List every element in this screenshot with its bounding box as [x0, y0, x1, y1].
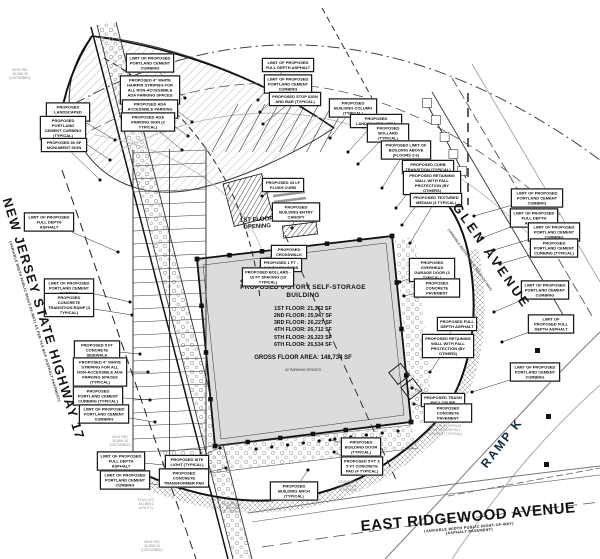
site-plan-canvas: NEW JERSEY STATE HIGHWAY 17 (VARIABLE WI… — [0, 0, 600, 559]
callout-label: PROPOSED RETAINING WALL WITH FALL PROTEC… — [403, 171, 461, 195]
survey-note: MONUMENT 28.59/9.24 (EXISTING) — [338, 480, 357, 492]
callout-label: PROPOSED SITE LIGHT (TYPICAL) — [165, 455, 209, 469]
building-floor-line: 4TH FLOOR: 26,712 SF — [228, 327, 378, 334]
callout-label: PROPOSED CONCRETE PAVEMENT — [424, 404, 472, 423]
survey-note: MON FND 28.59/9.06 (DISTURBED) — [9, 68, 30, 80]
callout-label: PROPOSED PORTLAND CEMENT CURBING (TYPICA… — [40, 116, 86, 140]
callout-label: PROPOSED 80 SF MONUMENT SIGN — [41, 138, 87, 152]
callout-label: LIMIT OF PROPOSED PORTLAND CEMENT CURBIN… — [100, 471, 150, 490]
callout-label: LIMIT OF PROPOSED FULL DEPTH ASPHALT — [97, 452, 145, 471]
callout-label: PROPOSED ADA PARKING SIGN (2 TYPICAL) — [121, 113, 175, 132]
callout-label: PROPOSED CONCRETE TRANSFORMER PAD — [159, 469, 209, 488]
callout-label: PROPOSED BOLLARD - 10 FT SPACING (10 TYP… — [242, 268, 294, 287]
survey-note: MON FND 28.59/9.16 (DISTURBED) — [141, 540, 162, 552]
callout-label: PROPOSED CONCRETE PAVEMENT — [414, 279, 460, 298]
entry-canopy — [282, 222, 317, 238]
callout-label: PROPOSED PORTLAND CEMENT CURBING (TYPICA… — [73, 387, 123, 406]
building-floor-line: 5TH FLOOR: 26,323 SF — [228, 335, 378, 342]
callout-label: PROPOSED 5 FT X 5 FT CONCRETE PAD (4 TYP… — [341, 457, 383, 476]
callout-label: PROPOSED RETAINING WALL WITH FALL PROTEC… — [422, 334, 474, 358]
callout-label: PROPOSED BUILDING ARCH (TYPICAL) — [270, 482, 318, 501]
building-floor-line: 2ND FLOOR: 25,947 SF — [228, 313, 378, 320]
building-floor-line: 1ST FLOOR: 21,362 SF — [228, 306, 378, 313]
callout-label: LIMIT OF PROPOSED FULL DEPTH ASPHALT — [24, 213, 74, 232]
callout-label: LIMIT OF PROPOSED FULL DEPTH ASPHALT — [262, 58, 314, 72]
building-gross-area: GROSS FLOOR AREA: 148,734 SF — [228, 355, 378, 361]
callout-label: PROPOSED FULL DEPTH ASPHALT — [437, 317, 477, 331]
survey-note: MONUMENT (R.O.W.) (EXISTING) — [222, 502, 241, 514]
callout-label: PROPOSED 33 LF FLUSH CURB — [262, 178, 304, 192]
callout-label: LIMIT OF PROPOSED PORTLAND CEMENT CURBIN… — [510, 363, 560, 382]
building-text-block: PROPOSED 6-STORY SELF-STORAGE BUILDING 1… — [228, 284, 378, 372]
callout-label: PROPOSED CONCRETE TRANSITION RAMP (3 TYP… — [44, 293, 94, 317]
callout-label: PROPOSED 4" WHITE STRIPING FOR ALL NON-A… — [73, 358, 127, 387]
survey-note: POLE (UT) 28.198/9.2 (UTILITY) — [138, 498, 154, 510]
callout-label: PROPOSED LIMIT OF BUILDING ABOVE (FLOORS… — [381, 141, 431, 160]
building-floor-areas: 1ST FLOOR: 21,362 SF2ND FLOOR: 25,947 SF… — [228, 306, 378, 349]
survey-note: MON FND 28.59/9.18 (DISTURBED) — [109, 435, 130, 447]
callout-label: PROPOSED BUILDING DOOR (TYPICAL) — [341, 438, 381, 457]
building-floor-line: 3RD FLOOR: 26,227 SF — [228, 320, 378, 327]
callout-label: LIMIT OF PROPOSED FULL DEPTH ASPHALT — [528, 315, 574, 334]
callout-label: PROPOSED PORTLAND CEMENT CURBING (TYPICA… — [530, 239, 578, 258]
callout-label: PROPOSED STOP SIGN AND BAR (TYPICAL) — [269, 92, 321, 106]
callout-label: LIMIT OF PROPOSED PORTLAND CEMENT CURBIN… — [126, 54, 174, 73]
building-parking-count: 42 PARKING SPACES — [228, 368, 378, 372]
callout-label: LIMIT OF PROPOSED PORTLAND CEMENT CURBIN… — [511, 189, 563, 208]
callout-label: PROPOSED CROSSWALK — [271, 245, 307, 259]
survey-note: MILL 2 IN & OVERLAY EXISTING ASPHALT PAV… — [428, 424, 462, 436]
callout-label: LIMIT OF PROPOSED PORTLAND CEMENT CURBIN… — [264, 75, 312, 94]
callout-label: LIMIT OF PROPOSED PORTLAND CEMENT CURBIN… — [79, 405, 129, 424]
building-floor-line: 6TH FLOOR: 26,534 SF — [228, 342, 378, 349]
callout-label: PROPOSED BUILDING ENTRY CANOPY — [272, 203, 320, 222]
